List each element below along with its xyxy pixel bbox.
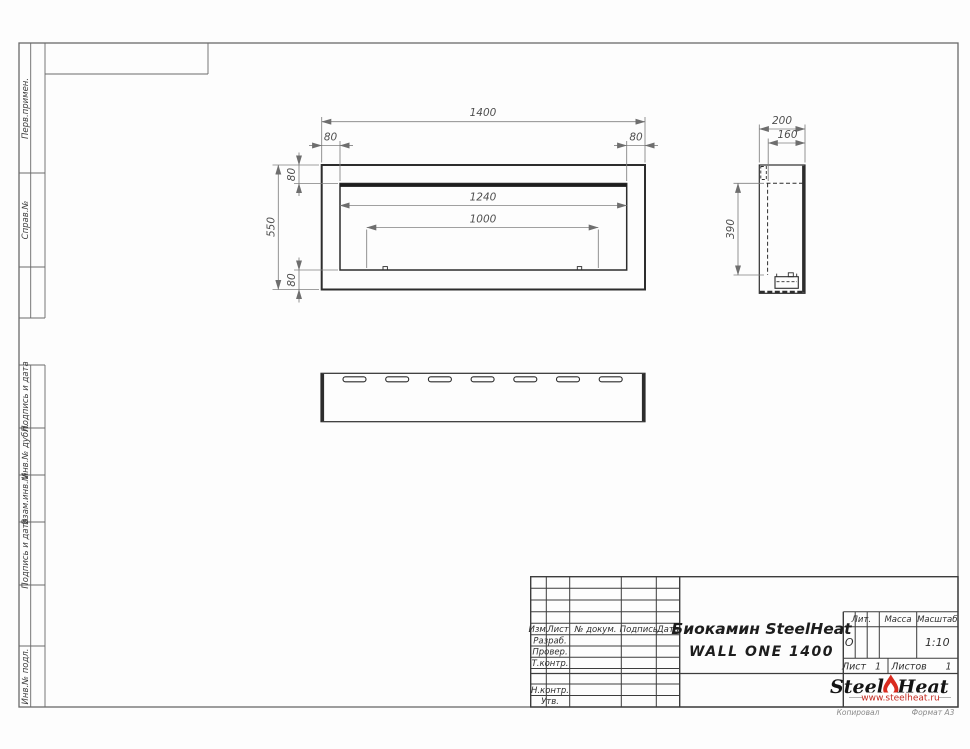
sidebar-label-inv-podl: Инв.№ подл. xyxy=(21,649,31,705)
tb-sheet-value: 1 xyxy=(875,662,881,673)
sidebar-label-sprav-no: Справ.№ xyxy=(21,201,31,240)
drawing-sheet-svg: Перв.примен. Справ.№ Подпись и дата Инв.… xyxy=(0,0,970,749)
sidebar-label-podpis-data-1: Подпись и дата xyxy=(21,361,31,431)
bottom-view-slots xyxy=(343,377,622,382)
bottom-view xyxy=(321,373,645,421)
sidebar-label-podpis-data-2: Подпись и дата xyxy=(21,518,31,588)
sidebar-label-vzam-inv: Взам.инв.№ xyxy=(21,472,31,524)
dim-front-overall-height: 550 xyxy=(266,217,278,237)
footer-format-label: Формат А3 xyxy=(912,708,955,717)
sidebar-labels: Перв.примен. Справ.№ Подпись и дата Инв.… xyxy=(21,78,31,705)
tb-col-doc-no: № докум. xyxy=(574,625,617,635)
dim-front-top-margin: 80 xyxy=(286,168,298,182)
dimension-lines xyxy=(273,117,806,303)
sheet-frame xyxy=(19,43,958,707)
tb-scale-value: 1:10 xyxy=(925,636,950,649)
top-left-stamp xyxy=(45,43,208,74)
sidebar-label-perv-primen: Перв.примен. xyxy=(21,78,31,139)
dim-front-left-margin: 80 xyxy=(324,132,338,144)
dim-front-opening-width: 1240 xyxy=(470,192,497,204)
drawing-sheet: Перв.примен. Справ.№ Подпись и дата Инв.… xyxy=(0,0,970,749)
tb-row-tcontrol: Т.контр. xyxy=(532,659,569,669)
tb-row-checked: Провер. xyxy=(532,648,567,658)
dim-front-bottom-margin: 80 xyxy=(286,273,298,287)
doc-title-line1: Биокамин SteelHeat xyxy=(671,620,852,638)
dim-front-overall-width: 1400 xyxy=(470,107,497,119)
dim-front-right-margin: 80 xyxy=(629,132,643,144)
tb-row-approved: Утв. xyxy=(541,697,559,707)
dim-side-opening-height: 390 xyxy=(725,219,737,239)
tb-lit-label: Лит. xyxy=(851,615,872,625)
footer-copied-label: Копировал xyxy=(837,708,880,717)
doc-title-line2: WALL ONE 1400 xyxy=(689,644,834,660)
tb-col-sign: Подпись xyxy=(620,625,658,635)
side-view xyxy=(759,165,805,293)
sidebar-label-inv-dubl: Инв.№ дубл. xyxy=(21,424,31,479)
steelheat-logo: Steel Heat www.steelheat.ru xyxy=(830,675,951,704)
dim-side-depth: 200 xyxy=(772,115,792,127)
tb-row-ncontrol: Н.контр. xyxy=(531,686,569,696)
tb-col-izm: Изм. xyxy=(529,625,549,635)
tb-lit-value: О xyxy=(845,636,854,649)
tb-sheets-label: Листов xyxy=(890,662,927,673)
dimension-texts: 1400 80 80 1240 1000 550 80 80 200 160 3… xyxy=(266,107,798,287)
tb-row-developed: Разраб. xyxy=(533,636,566,646)
logo-website: www.steelheat.ru xyxy=(861,694,939,704)
dim-side-inner-depth: 160 xyxy=(777,129,797,141)
tb-scale-label: Масштаб xyxy=(917,615,957,625)
tb-sheets-value: 1 xyxy=(945,662,951,673)
dim-front-burner-length: 1000 xyxy=(470,214,497,226)
tb-mass-label: Масса xyxy=(884,615,911,625)
tb-sheet-label: Лист xyxy=(841,662,867,673)
frame-footer: Копировал Формат А3 xyxy=(837,708,955,717)
tb-col-list: Лист xyxy=(546,625,570,635)
